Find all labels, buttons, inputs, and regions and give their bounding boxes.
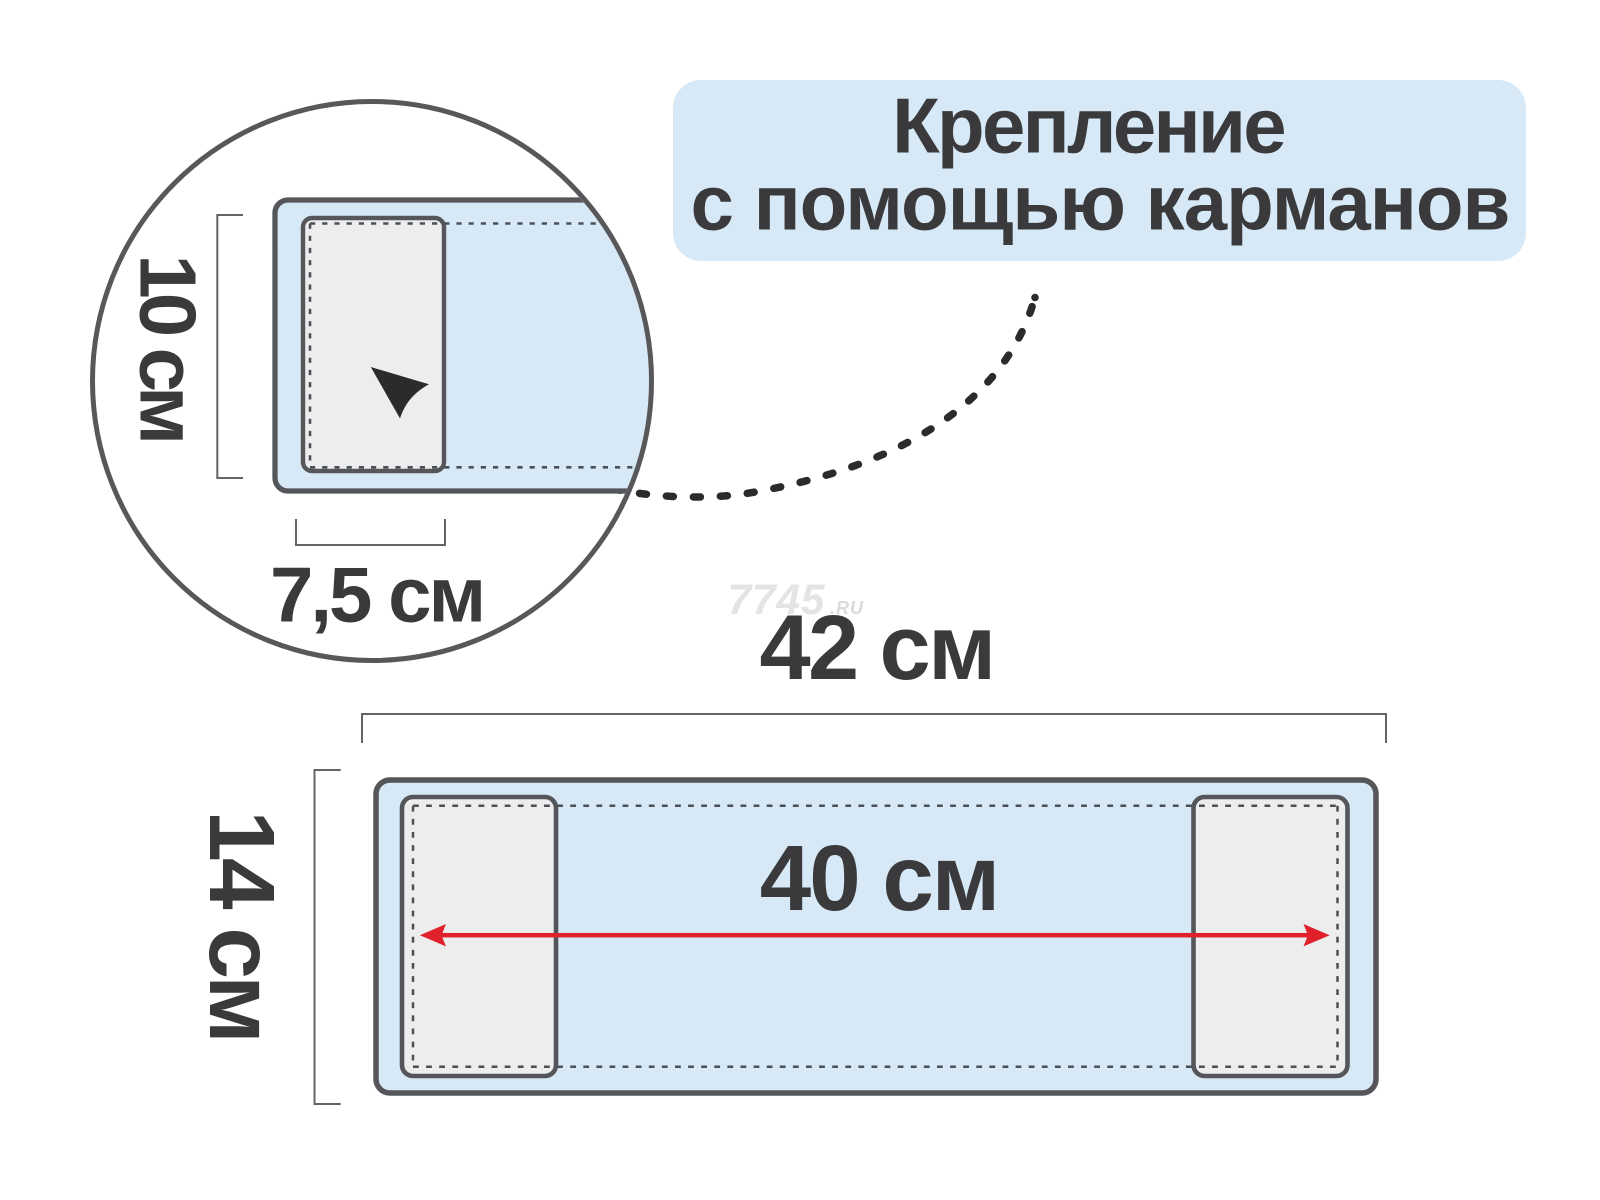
svg-text:7,5 см: 7,5 см bbox=[270, 550, 483, 638]
svg-text:40 см: 40 см bbox=[760, 826, 998, 930]
svg-text:с помощью карманов: с помощью карманов bbox=[691, 159, 1510, 247]
svg-text:42 см: 42 см bbox=[759, 597, 993, 699]
svg-text:Крепление: Крепление bbox=[892, 82, 1284, 170]
svg-text:10 см: 10 см bbox=[124, 254, 213, 440]
svg-text:14 см: 14 см bbox=[190, 810, 294, 1040]
